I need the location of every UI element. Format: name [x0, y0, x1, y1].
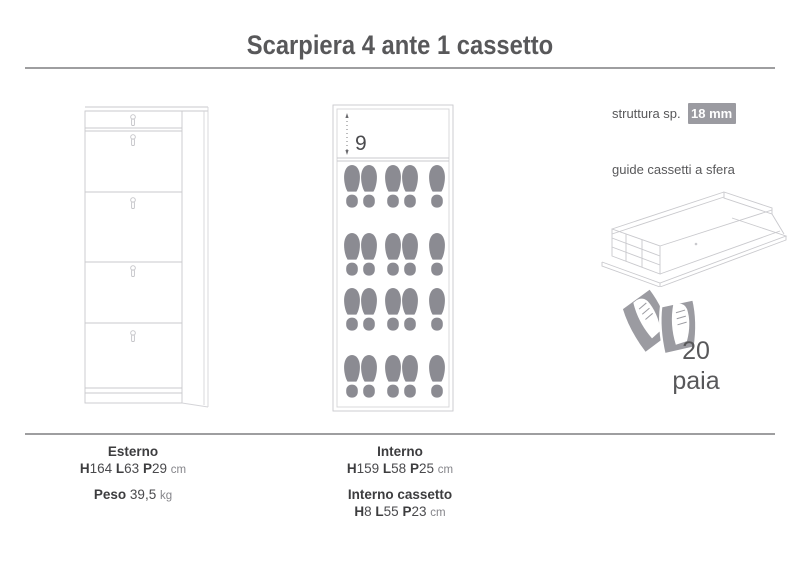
footprint-icon	[344, 288, 360, 331]
footprint-icon	[344, 165, 360, 208]
esterno-dimensions-block: Esterno H164 L63 P29 cm Peso 39,5 kg	[25, 443, 241, 505]
footprint-icon	[402, 165, 418, 208]
esterno-dimensions: H164 L63 P29 cm	[25, 460, 241, 479]
footprint-icon	[344, 355, 360, 398]
footprint-icon	[344, 233, 360, 276]
capacity-value: 20	[656, 336, 736, 366]
footprint-icon	[361, 355, 377, 398]
spec-sheet-page: Scarpiera 4 ante 1 cassetto	[0, 0, 800, 566]
interno-label: Interno	[292, 443, 508, 460]
footprint-icon	[385, 355, 401, 398]
cabinet-front-illustration	[72, 100, 212, 415]
interno-cassetto-label: Interno cassetto	[292, 486, 508, 503]
structure-thickness-badge: 18 mm	[688, 103, 736, 124]
footprint-icon	[429, 233, 445, 276]
footprint-icon	[429, 355, 445, 398]
title-divider-line	[25, 67, 775, 69]
footprint-icon	[361, 233, 377, 276]
drawer-depth-dimension: 9	[345, 113, 366, 155]
bottom-divider-line	[25, 433, 775, 435]
footprint-icon	[402, 233, 418, 276]
cabinet-interior-illustration: 9	[330, 103, 456, 415]
capacity-block: 20 paia	[656, 336, 736, 396]
page-title: Scarpiera 4 ante 1 cassetto	[48, 30, 752, 61]
peso-line: Peso 39,5 kg	[25, 486, 241, 505]
interno-dimensions-block: Interno H159 L58 P25 cm Interno cassetto…	[292, 443, 508, 522]
footprints-grid	[344, 165, 445, 398]
footprint-icon	[385, 233, 401, 276]
esterno-label: Esterno	[25, 443, 241, 460]
footprint-icon	[361, 288, 377, 331]
footprint-icon	[385, 165, 401, 208]
keyhole-handle-icons	[131, 115, 136, 342]
interno-cassetto-dimensions: H8 L55 P23 cm	[292, 503, 508, 522]
drawer-depth-value: 9	[355, 132, 367, 155]
interno-dimensions: H159 L58 P25 cm	[292, 460, 508, 479]
footprint-icon	[385, 288, 401, 331]
footprint-icon	[429, 288, 445, 331]
structure-thickness-label: struttura sp.	[612, 106, 681, 121]
footprint-icon	[402, 288, 418, 331]
footprint-icon	[402, 355, 418, 398]
structure-thickness-row: struttura sp. 18 mm	[612, 103, 736, 124]
footprint-icon	[429, 165, 445, 208]
drawer-slides-label: guide cassetti a sfera	[612, 162, 735, 177]
drawer-slides-illustration	[596, 182, 792, 287]
footprint-icon	[361, 165, 377, 208]
capacity-unit: paia	[656, 366, 736, 396]
